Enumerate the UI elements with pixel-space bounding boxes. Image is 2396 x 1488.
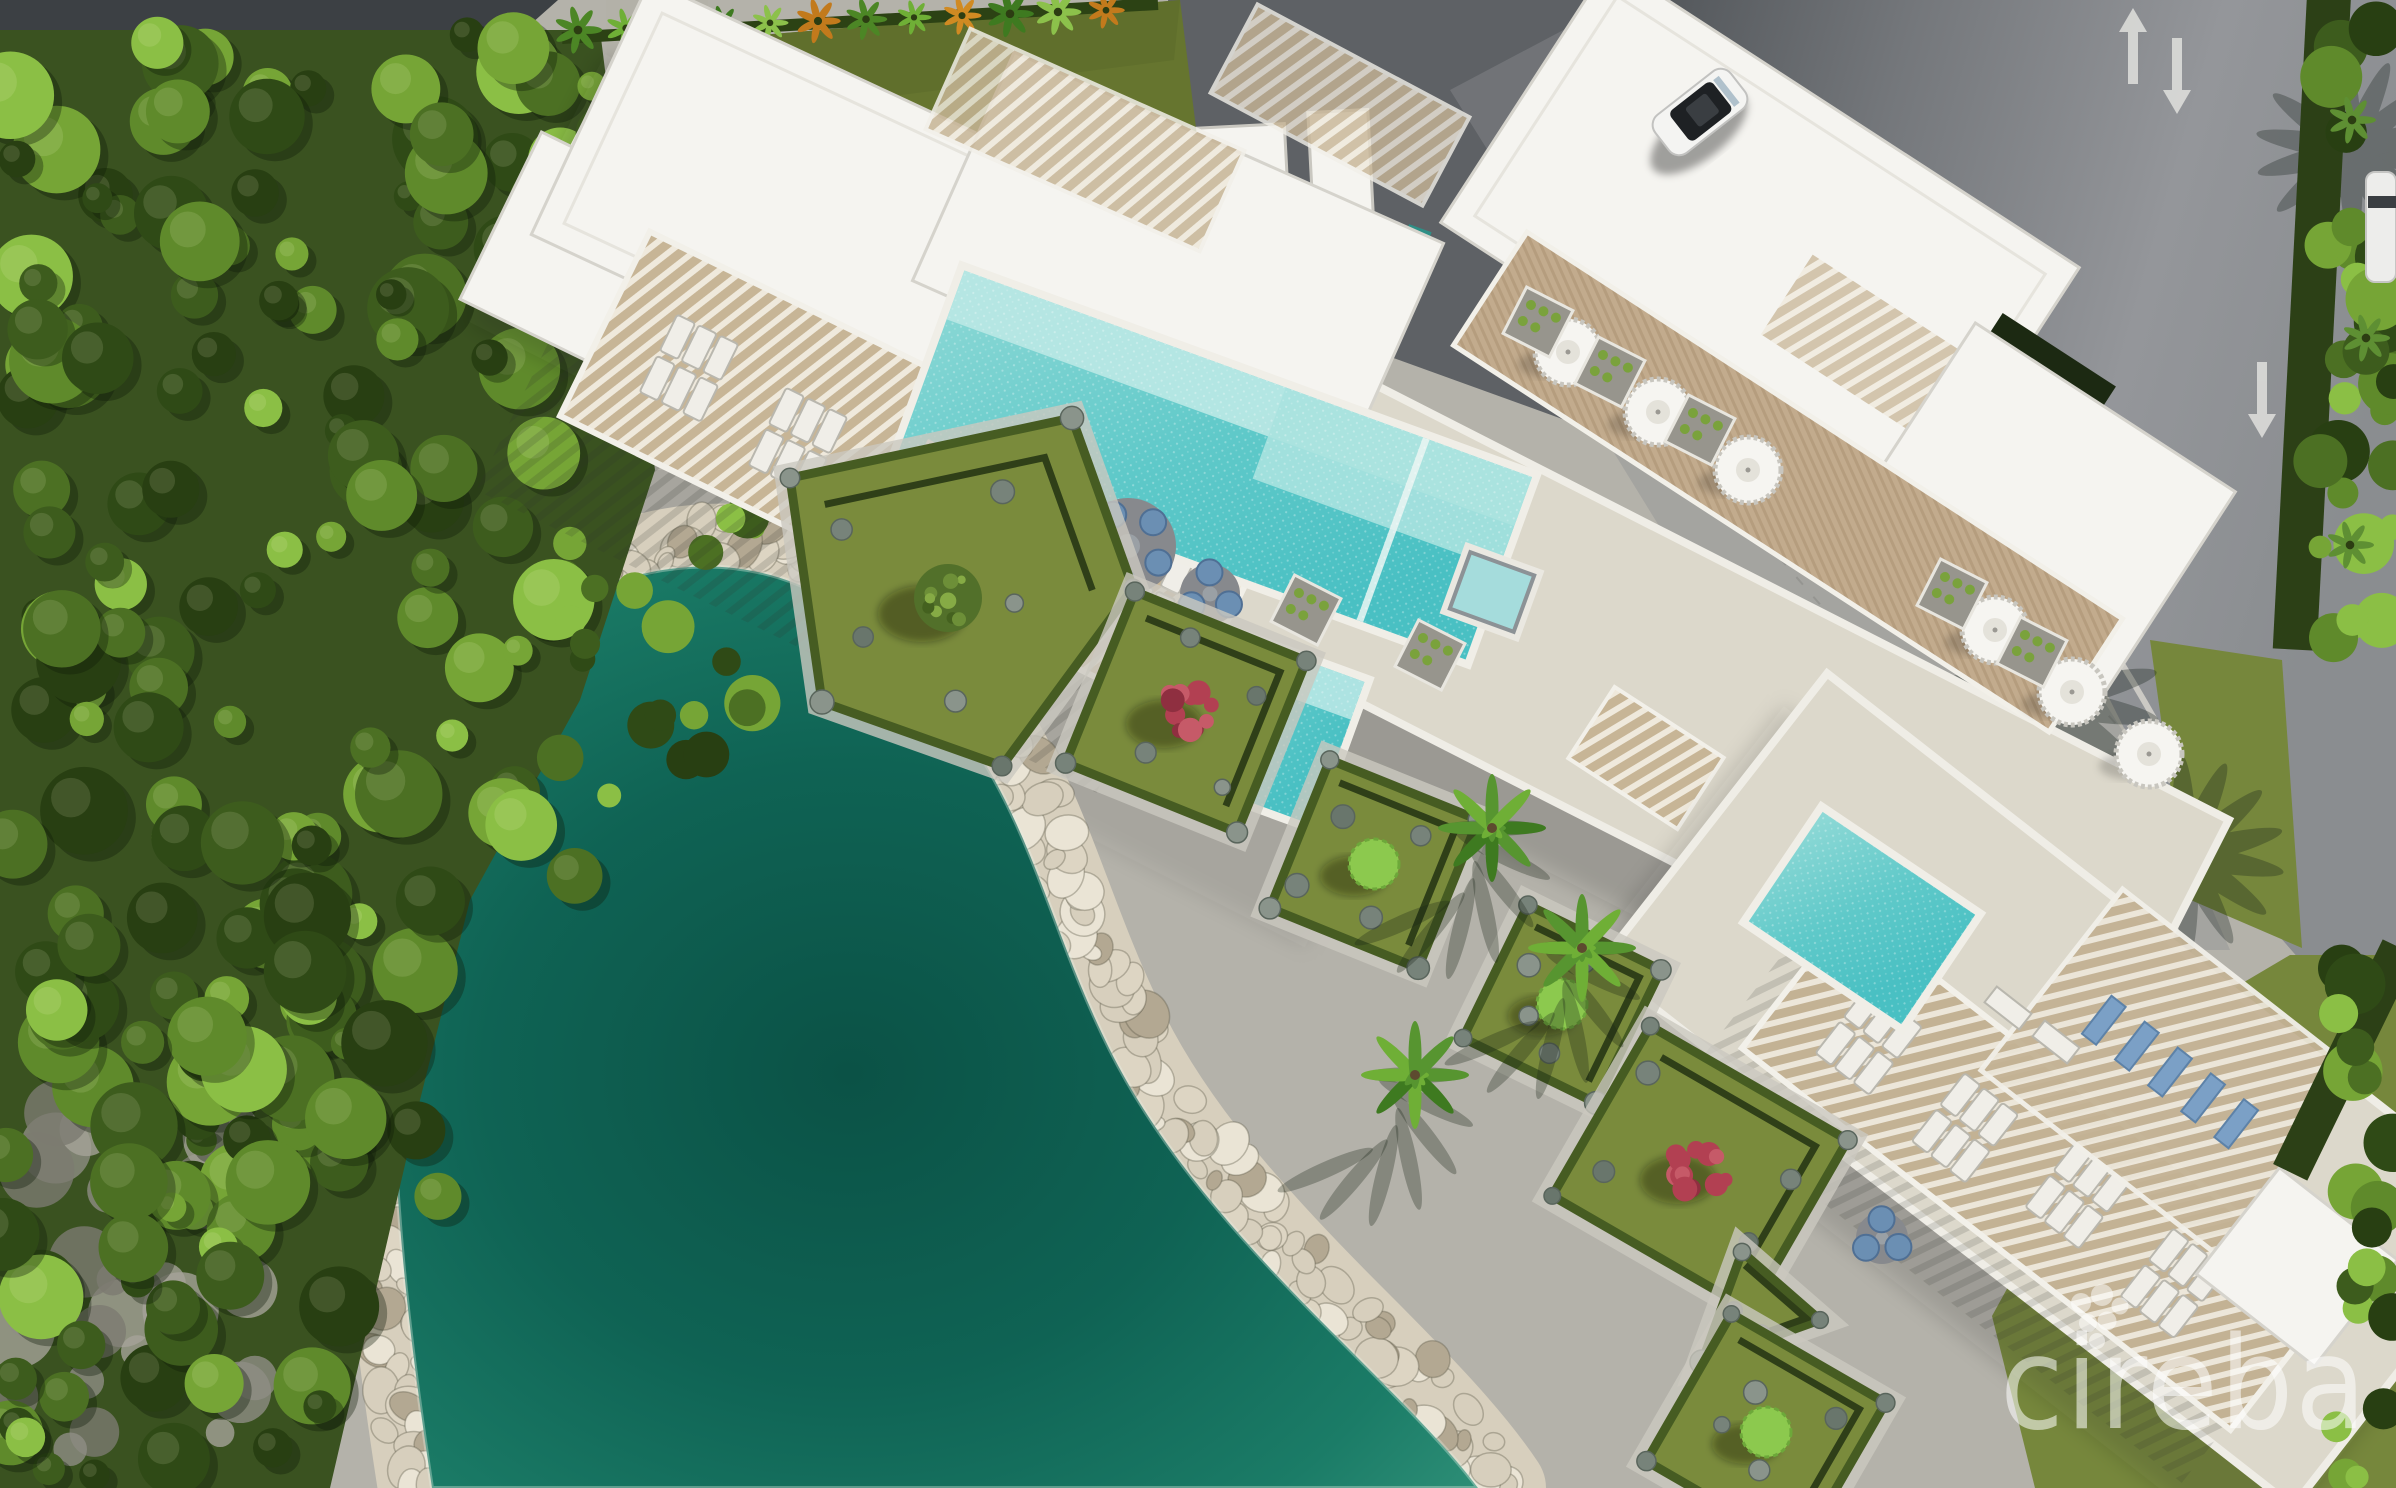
canopy-highlight	[454, 22, 470, 38]
canopy-highlight	[170, 211, 206, 247]
east-tree	[2352, 1207, 2392, 1247]
canopy-highlight	[19, 685, 49, 715]
canopy-highlight	[395, 1109, 421, 1135]
canopy-highlight	[211, 812, 249, 850]
canopy-highlight	[197, 337, 217, 357]
canopy-highlight	[405, 875, 436, 906]
chair-blue	[1869, 1206, 1895, 1232]
canopy-highlight	[46, 1378, 68, 1400]
canopy-highlight	[315, 1088, 352, 1125]
canopy-highlight	[355, 469, 387, 501]
border-shrub	[1838, 1131, 1857, 1150]
canopy-highlight	[440, 724, 454, 738]
canopy-highlight	[237, 175, 258, 196]
canopy-highlight	[309, 1276, 345, 1312]
east-tree	[2332, 208, 2371, 247]
table	[1203, 587, 1218, 602]
canopy-highlight	[34, 987, 62, 1015]
border-shrub	[780, 468, 799, 487]
canopy-highlight	[218, 710, 233, 725]
canopy-highlight	[137, 665, 163, 691]
canopy-highlight	[187, 585, 213, 611]
canopy-highlight	[480, 504, 507, 531]
canopy-highlight	[115, 480, 143, 508]
chair-blue	[1196, 559, 1222, 585]
canopy-highlight	[101, 1093, 140, 1132]
shore-bush	[570, 629, 600, 659]
border-shrub	[1641, 1017, 1659, 1035]
canopy-highlight	[274, 941, 311, 978]
canopy-highlight	[30, 513, 53, 536]
canopy-highlight	[10, 1422, 28, 1440]
border-shrub	[1749, 1460, 1770, 1481]
canopy-highlight	[122, 701, 154, 733]
aerial-render: cireba	[0, 0, 2396, 1488]
canopy-highlight	[295, 75, 311, 91]
border-shrub	[945, 690, 967, 712]
canopy-highlight	[205, 1250, 236, 1281]
border-shrub	[1214, 779, 1230, 795]
shore-bush	[645, 700, 676, 731]
canopy-highlight	[15, 307, 42, 334]
border-shrub	[1733, 1243, 1750, 1260]
canopy-highlight	[24, 269, 41, 286]
canopy-highlight	[337, 429, 369, 461]
canopy-highlight	[507, 640, 520, 653]
canopy-highlight	[380, 63, 411, 94]
canopy-highlight	[405, 595, 432, 622]
canopy-highlight	[271, 536, 287, 552]
canopy-highlight	[51, 778, 90, 817]
shore-bush	[680, 701, 708, 729]
east-tree	[2319, 994, 2358, 1033]
van-glass	[2368, 196, 2396, 208]
canopy-highlight	[136, 891, 168, 923]
shore-bush	[537, 735, 584, 782]
border-shrub	[1812, 1312, 1829, 1329]
shore-bush	[616, 572, 653, 609]
canopy-highlight	[355, 732, 373, 750]
canopy-highlight	[192, 1361, 219, 1388]
canopy-highlight	[147, 1432, 179, 1464]
border-shrub	[1411, 826, 1431, 846]
border-shrub	[853, 627, 873, 647]
border-shrub	[1297, 651, 1316, 670]
canopy-highlight	[86, 187, 100, 201]
canopy-highlight	[486, 21, 518, 53]
border-shrub	[1825, 1408, 1847, 1430]
canopy-highlight	[275, 883, 314, 922]
border-shrub	[1744, 1381, 1768, 1405]
border-shrub	[1321, 751, 1339, 769]
border-shrub	[992, 756, 1012, 776]
border-shrub	[1637, 1452, 1656, 1471]
canopy-highlight	[264, 286, 282, 304]
canopy-highlight	[55, 892, 80, 917]
canopy-highlight	[418, 110, 447, 139]
canopy-highlight	[236, 1151, 274, 1189]
canopy-highlight	[454, 642, 485, 673]
canopy-highlight	[83, 1463, 97, 1477]
white-vehicle-edge	[2366, 172, 2396, 282]
canopy-highlight	[177, 1007, 213, 1043]
canopy-highlight	[383, 938, 421, 976]
canopy-highlight	[352, 1011, 391, 1050]
canopy-highlight	[554, 855, 579, 880]
canopy-highlight	[126, 1026, 145, 1045]
canopy-highlight	[308, 1394, 323, 1409]
border-shrub	[1517, 954, 1540, 977]
canopy-highlight	[153, 783, 178, 808]
canopy-highlight	[476, 344, 492, 360]
border-shrub	[1331, 805, 1355, 829]
chair-blue	[1140, 509, 1166, 535]
border-shrub	[1056, 753, 1076, 773]
canopy-highlight	[419, 443, 449, 473]
border-shrub	[1259, 897, 1280, 918]
canopy-highlight	[229, 1121, 250, 1142]
canopy-highlight	[138, 23, 161, 46]
border-shrub	[1454, 1029, 1471, 1046]
rock-patch	[206, 1418, 235, 1447]
canopy-highlight	[494, 798, 526, 830]
shore-bush	[642, 600, 695, 653]
canopy-highlight	[3, 145, 19, 161]
canopy-highlight	[100, 1153, 135, 1188]
east-tree	[2337, 1028, 2375, 1066]
border-shrub	[1723, 1306, 1739, 1322]
van-body	[2366, 172, 2396, 282]
canopy-highlight	[297, 831, 315, 849]
border-shrub	[1714, 1417, 1730, 1433]
canopy-highlight	[71, 331, 103, 363]
border-shrub	[810, 690, 834, 714]
watermark: cireba	[2000, 1284, 2368, 1459]
east-tree	[2336, 604, 2368, 636]
canopy-highlight	[65, 922, 93, 950]
canopy-highlight	[149, 468, 175, 494]
shore-bush	[581, 575, 608, 602]
canopy-highlight	[382, 324, 401, 343]
canopy-highlight	[23, 949, 51, 977]
border-shrub	[1227, 822, 1248, 843]
east-tree	[2345, 1466, 2368, 1488]
canopy-highlight	[0, 1363, 19, 1382]
canopy-highlight	[107, 1221, 138, 1252]
border-shrub	[1060, 406, 1083, 429]
canopy-highlight	[160, 814, 190, 844]
shore-bush	[684, 732, 730, 778]
canopy-highlight	[249, 394, 266, 411]
east-tree	[2309, 536, 2332, 559]
shore-bush	[597, 784, 621, 808]
canopy-highlight	[523, 569, 560, 606]
canopy-highlight	[20, 468, 46, 494]
canopy-highlight	[380, 283, 394, 297]
east-tree	[2300, 46, 2362, 108]
border-shrub	[1285, 873, 1309, 897]
canopy-highlight	[33, 600, 68, 635]
border-shrub	[831, 519, 852, 540]
border-shrub	[991, 480, 1015, 504]
logo-dot	[2091, 1284, 2113, 1306]
border-shrub	[1651, 960, 1671, 980]
canopy-highlight	[420, 1179, 441, 1200]
canopy-highlight	[283, 1357, 318, 1392]
canopy-highlight	[154, 87, 183, 116]
canopy-highlight	[331, 373, 358, 400]
canopy-highlight	[244, 577, 260, 593]
east-tree	[2293, 434, 2347, 488]
border-shrub	[1781, 1169, 1801, 1189]
border-shrub	[1181, 628, 1200, 647]
canopy-highlight	[90, 548, 107, 565]
canopy-highlight	[416, 553, 433, 570]
border-shrub	[1544, 1188, 1561, 1205]
canopy-highlight	[258, 1433, 276, 1451]
canopy-highlight	[74, 706, 89, 721]
canopy-highlight	[156, 977, 178, 999]
border-shrub	[1005, 594, 1023, 612]
border-shrub	[1876, 1394, 1895, 1413]
chair-blue	[1853, 1235, 1879, 1261]
canopy-highlight	[280, 241, 295, 256]
border-shrub	[1636, 1061, 1660, 1085]
shore-bush	[712, 647, 741, 676]
canopy-highlight	[163, 374, 184, 395]
border-shrub	[1593, 1161, 1615, 1183]
border-shrub	[1125, 582, 1144, 601]
canopy-highlight	[239, 88, 273, 122]
site-plan-rendering: cireba	[0, 0, 2396, 1488]
border-shrub	[1247, 687, 1266, 706]
canopy-highlight	[224, 915, 252, 943]
boulder	[1470, 1453, 1511, 1488]
border-shrub	[1135, 742, 1156, 763]
canopy-highlight	[490, 140, 516, 166]
shore-bush	[729, 689, 766, 726]
watermark-brand-text: cireba	[2000, 1310, 2368, 1459]
east-tree	[2329, 382, 2361, 414]
canopy-highlight	[129, 1352, 159, 1382]
chair-blue	[1885, 1234, 1911, 1260]
canopy-highlight	[320, 526, 334, 540]
east-tree	[2348, 1248, 2386, 1286]
chair-blue	[1145, 550, 1171, 576]
canopy-highlight	[63, 1327, 85, 1349]
